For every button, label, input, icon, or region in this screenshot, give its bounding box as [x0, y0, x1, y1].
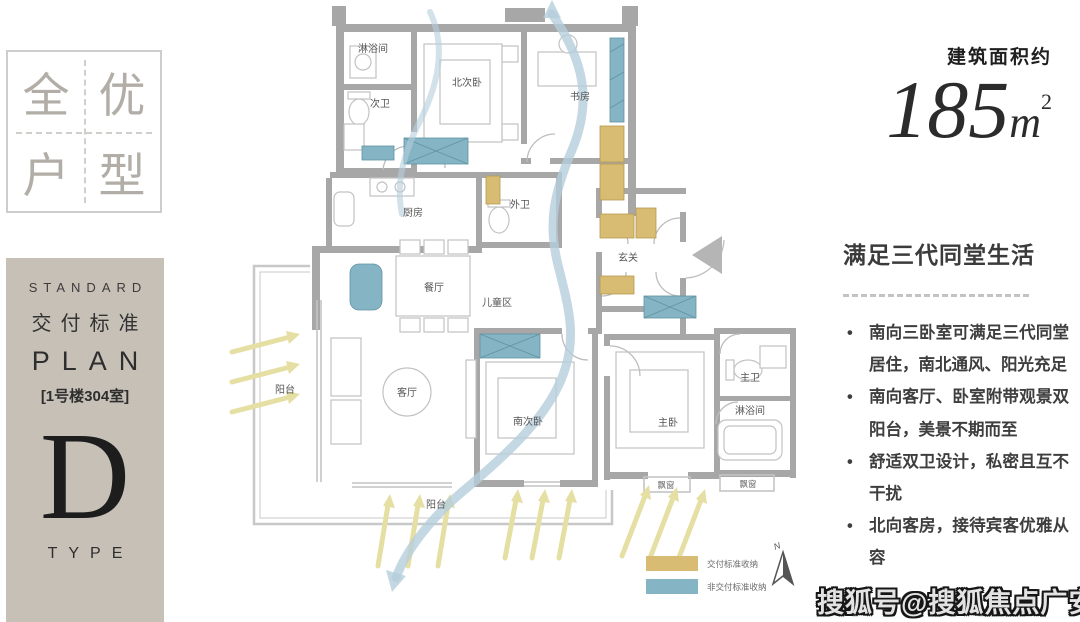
highlight-item: 南向三卧室可满足三代同堂居住，南北通风、阳光充足	[843, 317, 1069, 381]
room-label-shower-n: 淋浴间	[358, 42, 388, 55]
brand-logo: 全 优 户 型	[6, 50, 162, 213]
room-label-balcony-west: 阳台	[275, 383, 295, 396]
room-label-bath-master: 主卫	[740, 372, 760, 384]
room-label-kitchen: 厨房	[403, 206, 423, 219]
room-label-living: 客厅	[397, 386, 417, 399]
plan-label: PLAN	[6, 346, 164, 377]
room-label-bed-master: 主卧	[658, 416, 678, 429]
highlight-item: 舒适双卫设计，私密且互不干扰	[843, 446, 1069, 510]
area-number: 185	[886, 64, 1009, 155]
legend-swatch-not-delivered	[646, 579, 698, 594]
room-label-dining: 餐厅	[424, 281, 444, 294]
highlight-item: 南向客厅、卧室附带观景双阳台，美景不期而至	[843, 381, 1069, 445]
type-label: TYPE	[6, 545, 164, 563]
room-label-bed-south: 南次卧	[513, 415, 543, 428]
legend-label-not-delivered: 非交付标准收纳	[707, 582, 767, 592]
north-compass: N	[772, 540, 793, 584]
room-label-bath-second: 次卫	[370, 97, 390, 110]
highlights-section: 满足三代同堂生活 南向三卧室可满足三代同堂居住，南北通风、阳光充足 南向客厅、卧…	[843, 236, 1069, 574]
room-label-bed-north: 北次卧	[452, 76, 482, 89]
room-label-kids-zone: 儿童区	[482, 296, 512, 309]
highlight-item: 北向客房，接待宾客优雅从容	[843, 510, 1069, 574]
sohu-watermark: 搜狐号@搜狐焦点广安站	[817, 581, 1080, 620]
north-label: N	[772, 540, 782, 552]
type-letter: D	[6, 412, 164, 543]
building-area-block: 建筑面积约 185m2	[822, 42, 1052, 151]
standard-label: STANDARD	[6, 280, 164, 295]
room-label-bay-window-2: 飘窗	[739, 479, 756, 489]
dashed-divider	[843, 294, 1029, 297]
area-unit-sup: 2	[1041, 89, 1052, 114]
room-label-bay-window-1: 飘窗	[657, 480, 674, 490]
unit-number-label: [1号楼304室]	[6, 385, 164, 406]
legend-swatch-delivered	[646, 556, 698, 571]
plan-legend: 交付标准收纳 非交付标准收纳	[646, 556, 767, 594]
room-label-balcony-south: 阳台	[426, 498, 446, 511]
logo-char-2: 优	[84, 52, 160, 132]
legend-label-delivered: 交付标准收纳	[707, 559, 758, 569]
entry-arrow	[692, 236, 722, 274]
area-unit: m	[1009, 98, 1041, 147]
logo-char-4: 型	[84, 132, 160, 212]
standard-plan-panel: STANDARD 交付标准 PLAN [1号楼304室] D TYPE	[6, 258, 164, 622]
room-label-study: 书房	[570, 90, 590, 103]
logo-char-3: 户	[8, 132, 84, 212]
delivery-standard-label: 交付标准	[6, 307, 164, 336]
logo-char-1: 全	[8, 52, 84, 132]
room-label-foyer: 玄关	[618, 251, 638, 264]
area-value: 185m2	[822, 69, 1052, 151]
highlights-heading: 满足三代同堂生活	[843, 236, 1069, 270]
room-label-bath-outer: 外卫	[510, 199, 530, 211]
highlights-list: 南向三卧室可满足三代同堂居住，南北通风、阳光充足 南向客厅、卧室附带观景双阳台，…	[843, 317, 1069, 574]
room-label-shower-s: 淋浴间	[735, 404, 765, 417]
